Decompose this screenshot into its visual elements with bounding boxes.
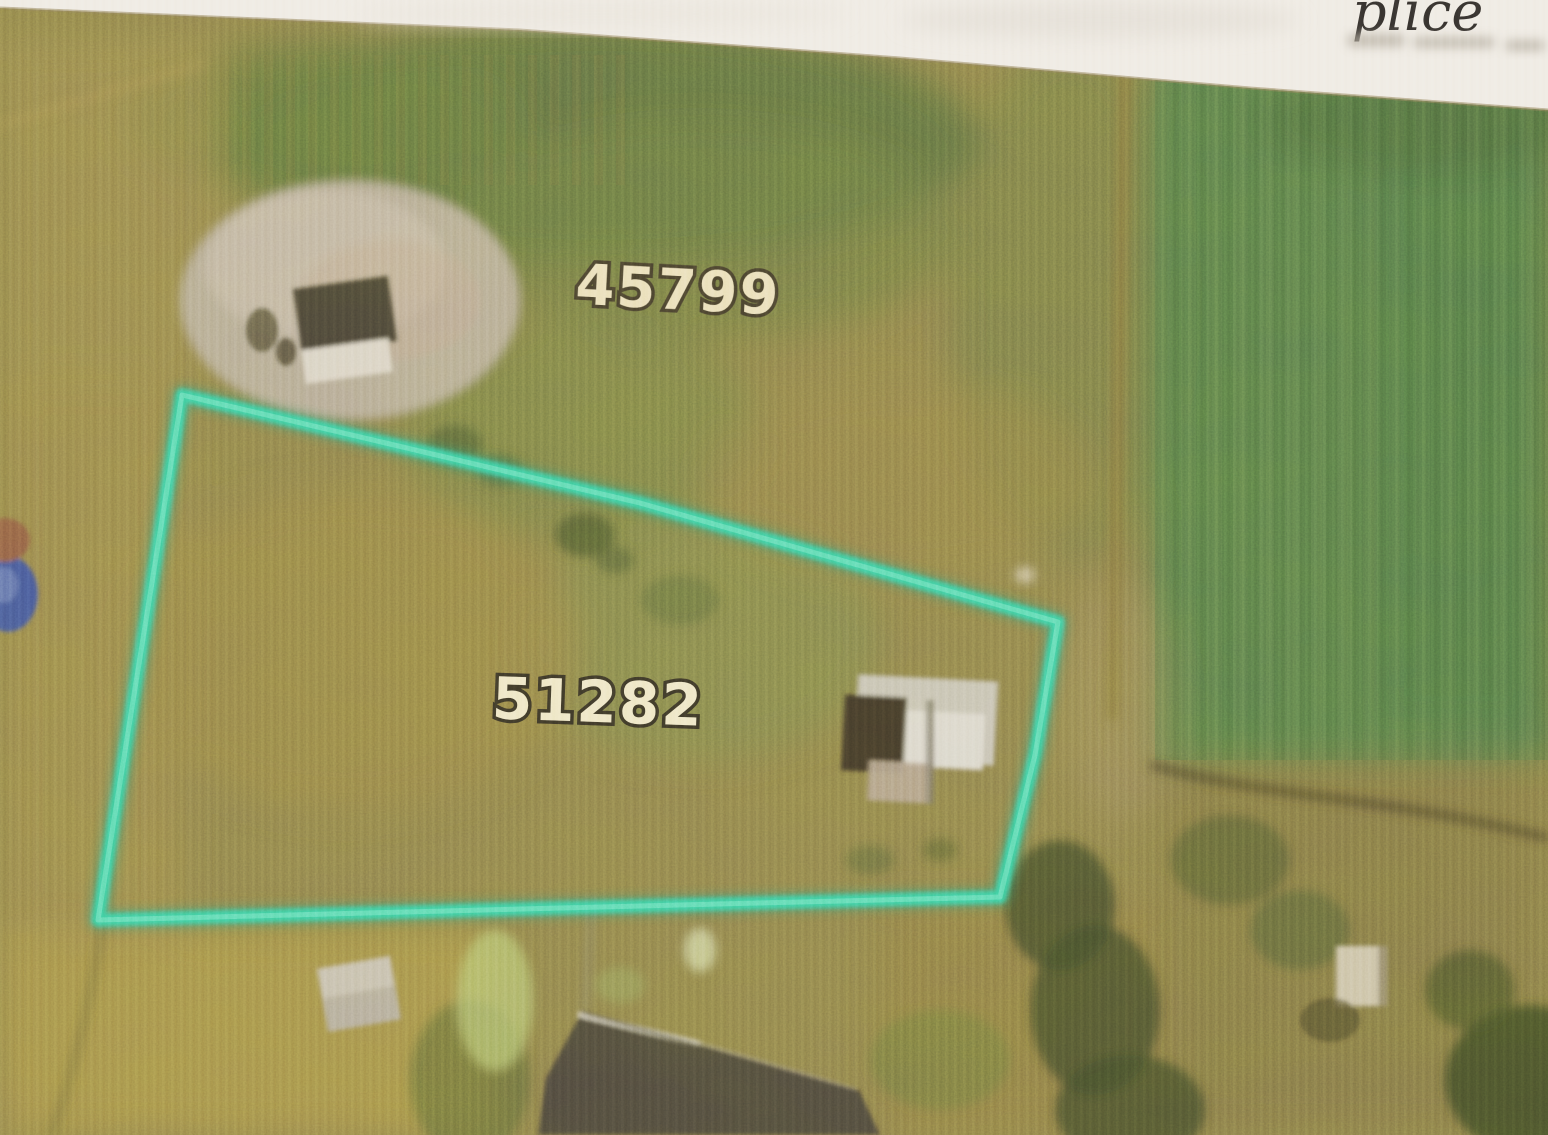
aerial-photo: 45799 51282 plice [0,0,1548,1135]
photo-grain-overlay [0,0,1548,1135]
scanned-aerial-map: 45799 51282 plice [0,0,1548,1135]
